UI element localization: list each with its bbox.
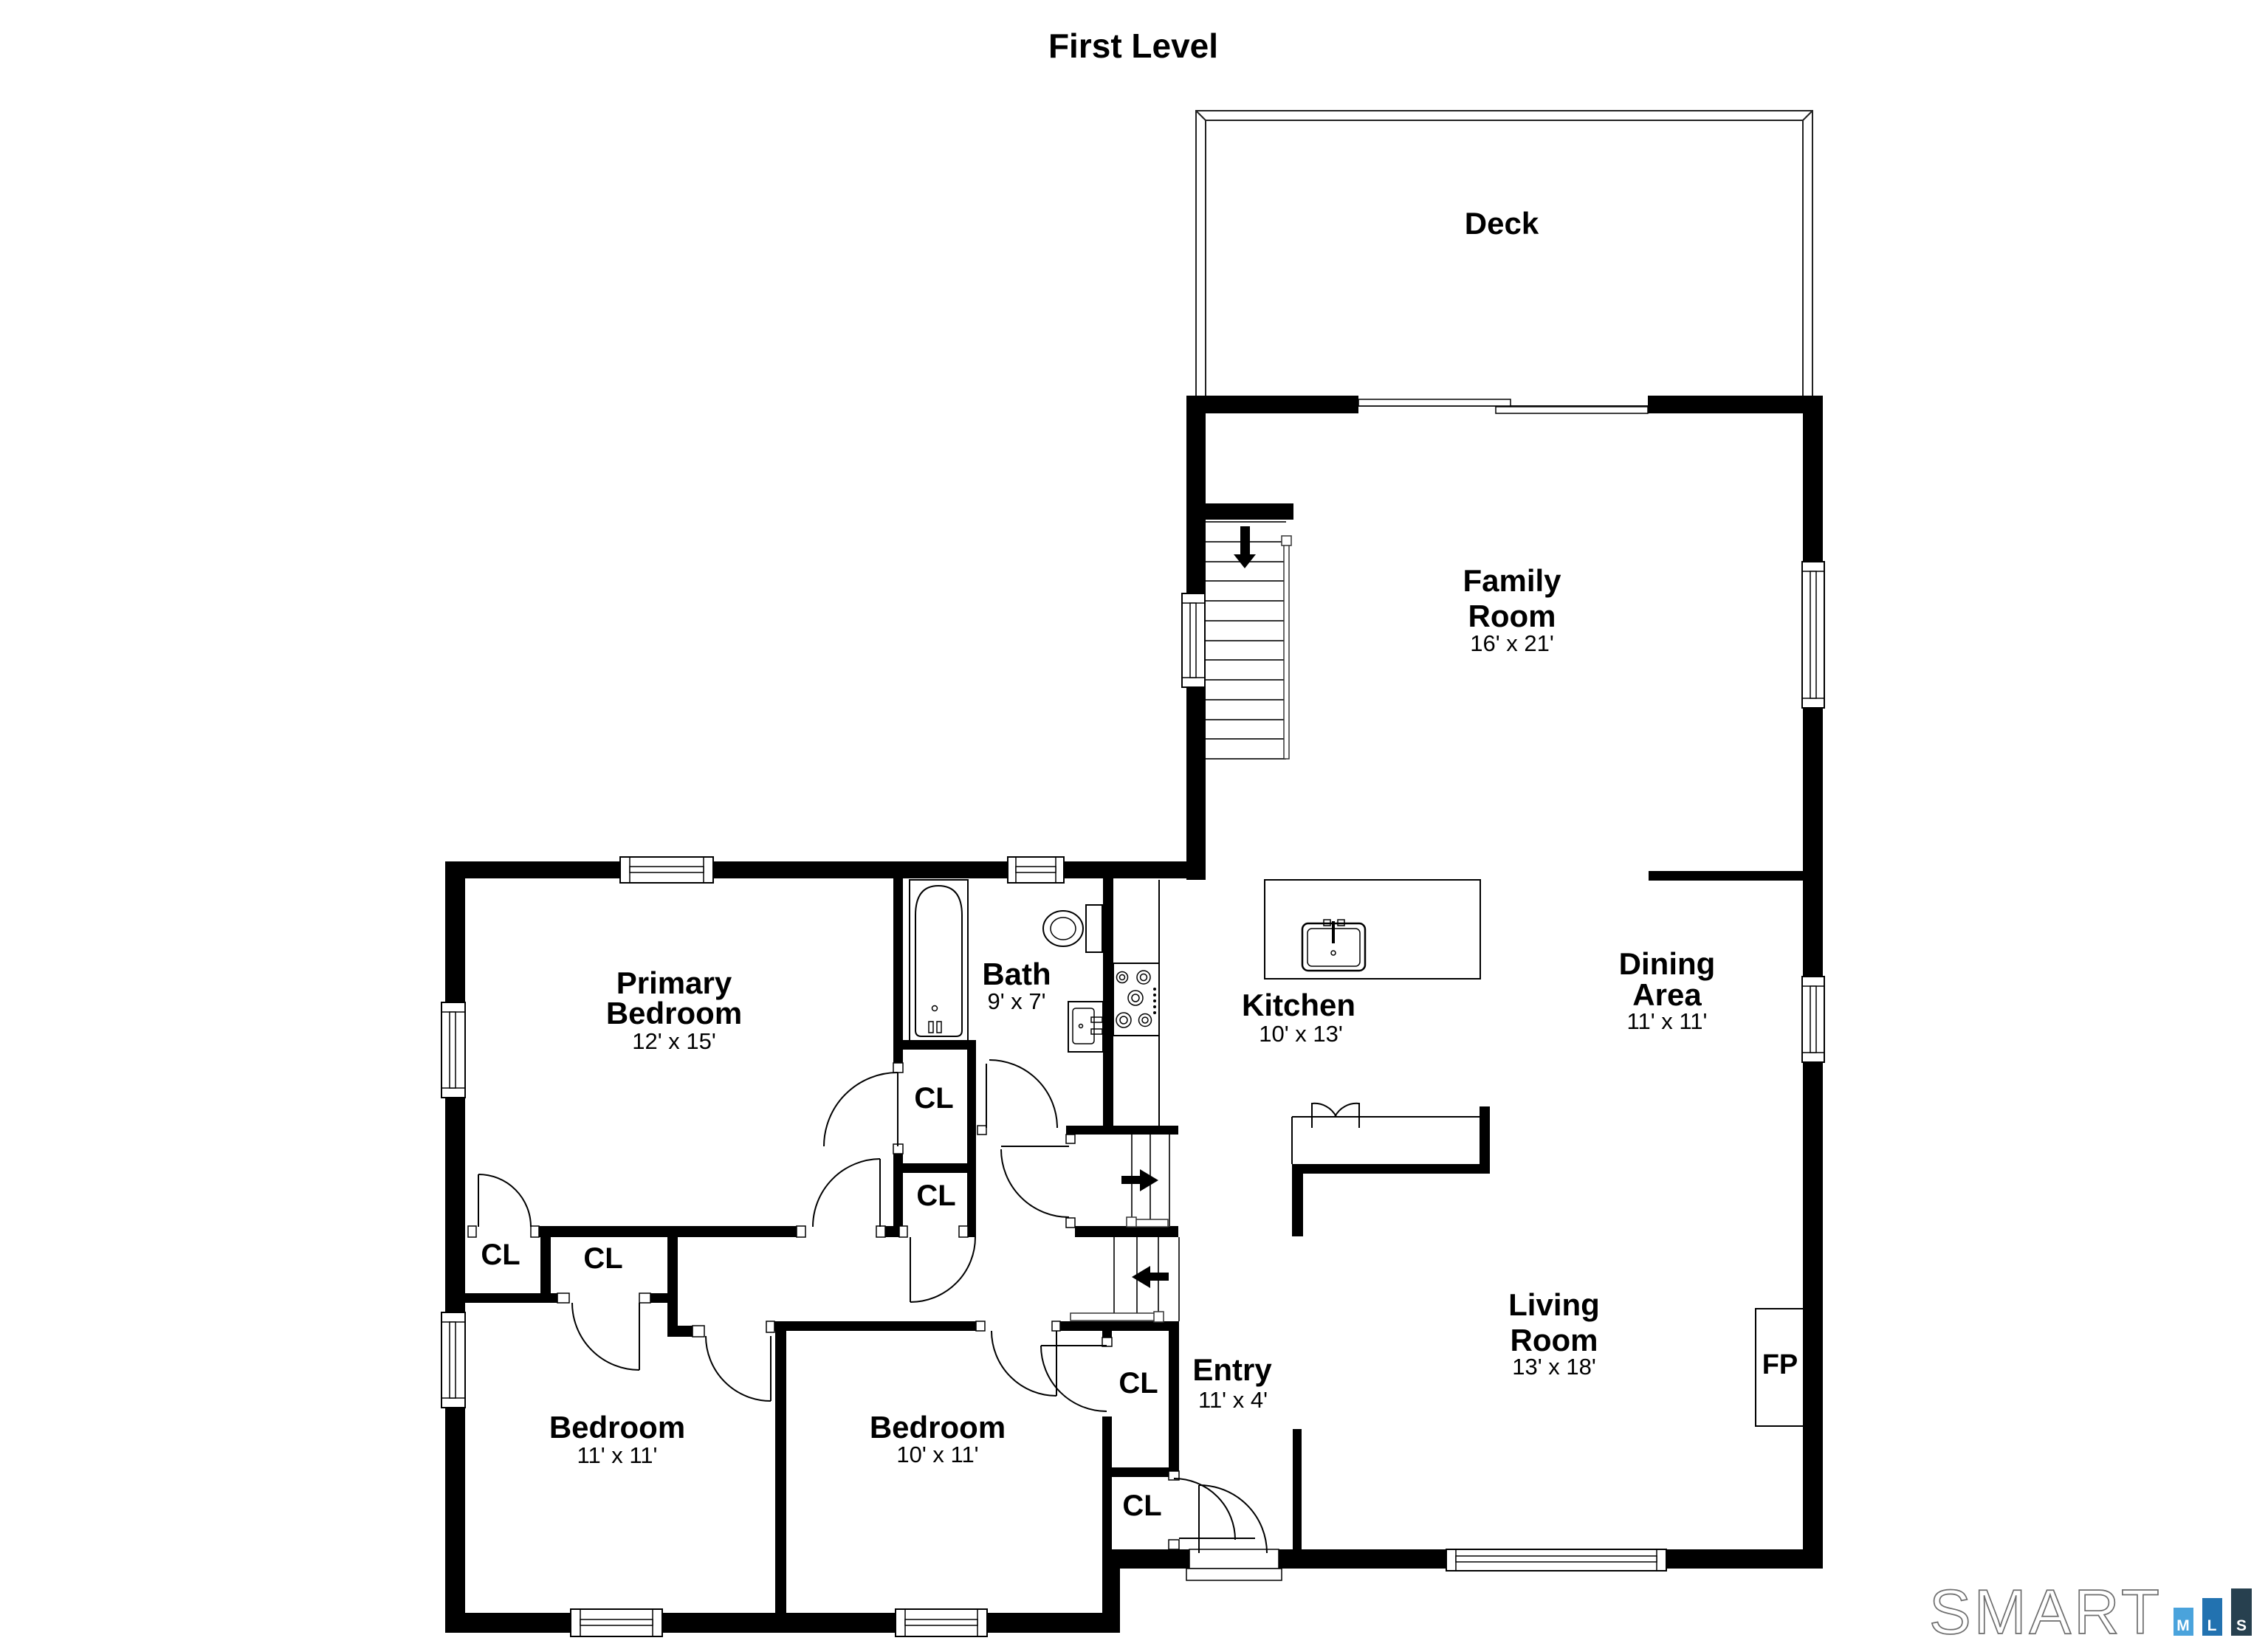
- svg-text:11' x 11': 11' x 11': [1627, 1008, 1708, 1034]
- svg-text:Deck: Deck: [1465, 206, 1539, 241]
- svg-text:CL: CL: [1122, 1490, 1161, 1522]
- svg-text:Area: Area: [1632, 977, 1702, 1012]
- svg-text:Primary: Primary: [616, 965, 732, 1000]
- svg-text:L: L: [2207, 1617, 2217, 1634]
- svg-text:Family: Family: [1463, 563, 1561, 598]
- svg-text:CL: CL: [1118, 1367, 1158, 1400]
- svg-text:FP: FP: [1762, 1349, 1798, 1380]
- svg-text:Room: Room: [1468, 599, 1556, 633]
- svg-text:Bedroom: Bedroom: [549, 1410, 685, 1445]
- svg-text:12' x 15': 12' x 15': [632, 1028, 716, 1054]
- svg-text:Room: Room: [1511, 1323, 1598, 1357]
- svg-text:10' x 11': 10' x 11': [896, 1442, 978, 1467]
- svg-text:11' x 4': 11' x 4': [1198, 1387, 1268, 1413]
- svg-text:CL: CL: [916, 1180, 955, 1212]
- svg-text:13' x 18': 13' x 18': [1512, 1354, 1596, 1380]
- svg-text:Kitchen: Kitchen: [1242, 988, 1355, 1022]
- svg-text:CL: CL: [914, 1082, 953, 1115]
- svg-text:S: S: [2236, 1617, 2247, 1634]
- svg-text:Bedroom: Bedroom: [870, 1410, 1006, 1445]
- svg-text:M: M: [2176, 1617, 2190, 1634]
- svg-text:Dining: Dining: [1619, 946, 1716, 981]
- svg-text:11' x 11': 11' x 11': [577, 1442, 658, 1468]
- svg-text:First Level: First Level: [1048, 27, 1218, 65]
- svg-text:16' x 21': 16' x 21': [1470, 630, 1554, 656]
- svg-text:Entry: Entry: [1192, 1352, 1272, 1387]
- svg-text:CL: CL: [583, 1242, 622, 1275]
- svg-text:10' x 13': 10' x 13': [1259, 1021, 1343, 1047]
- svg-text:9' x 7': 9' x 7': [987, 988, 1045, 1014]
- svg-text:CL: CL: [481, 1239, 520, 1271]
- svg-text:Bedroom: Bedroom: [606, 996, 742, 1030]
- svg-text:Living: Living: [1508, 1287, 1600, 1322]
- svg-text:Bath: Bath: [982, 957, 1051, 991]
- svg-text:SMART: SMART: [1929, 1577, 2162, 1648]
